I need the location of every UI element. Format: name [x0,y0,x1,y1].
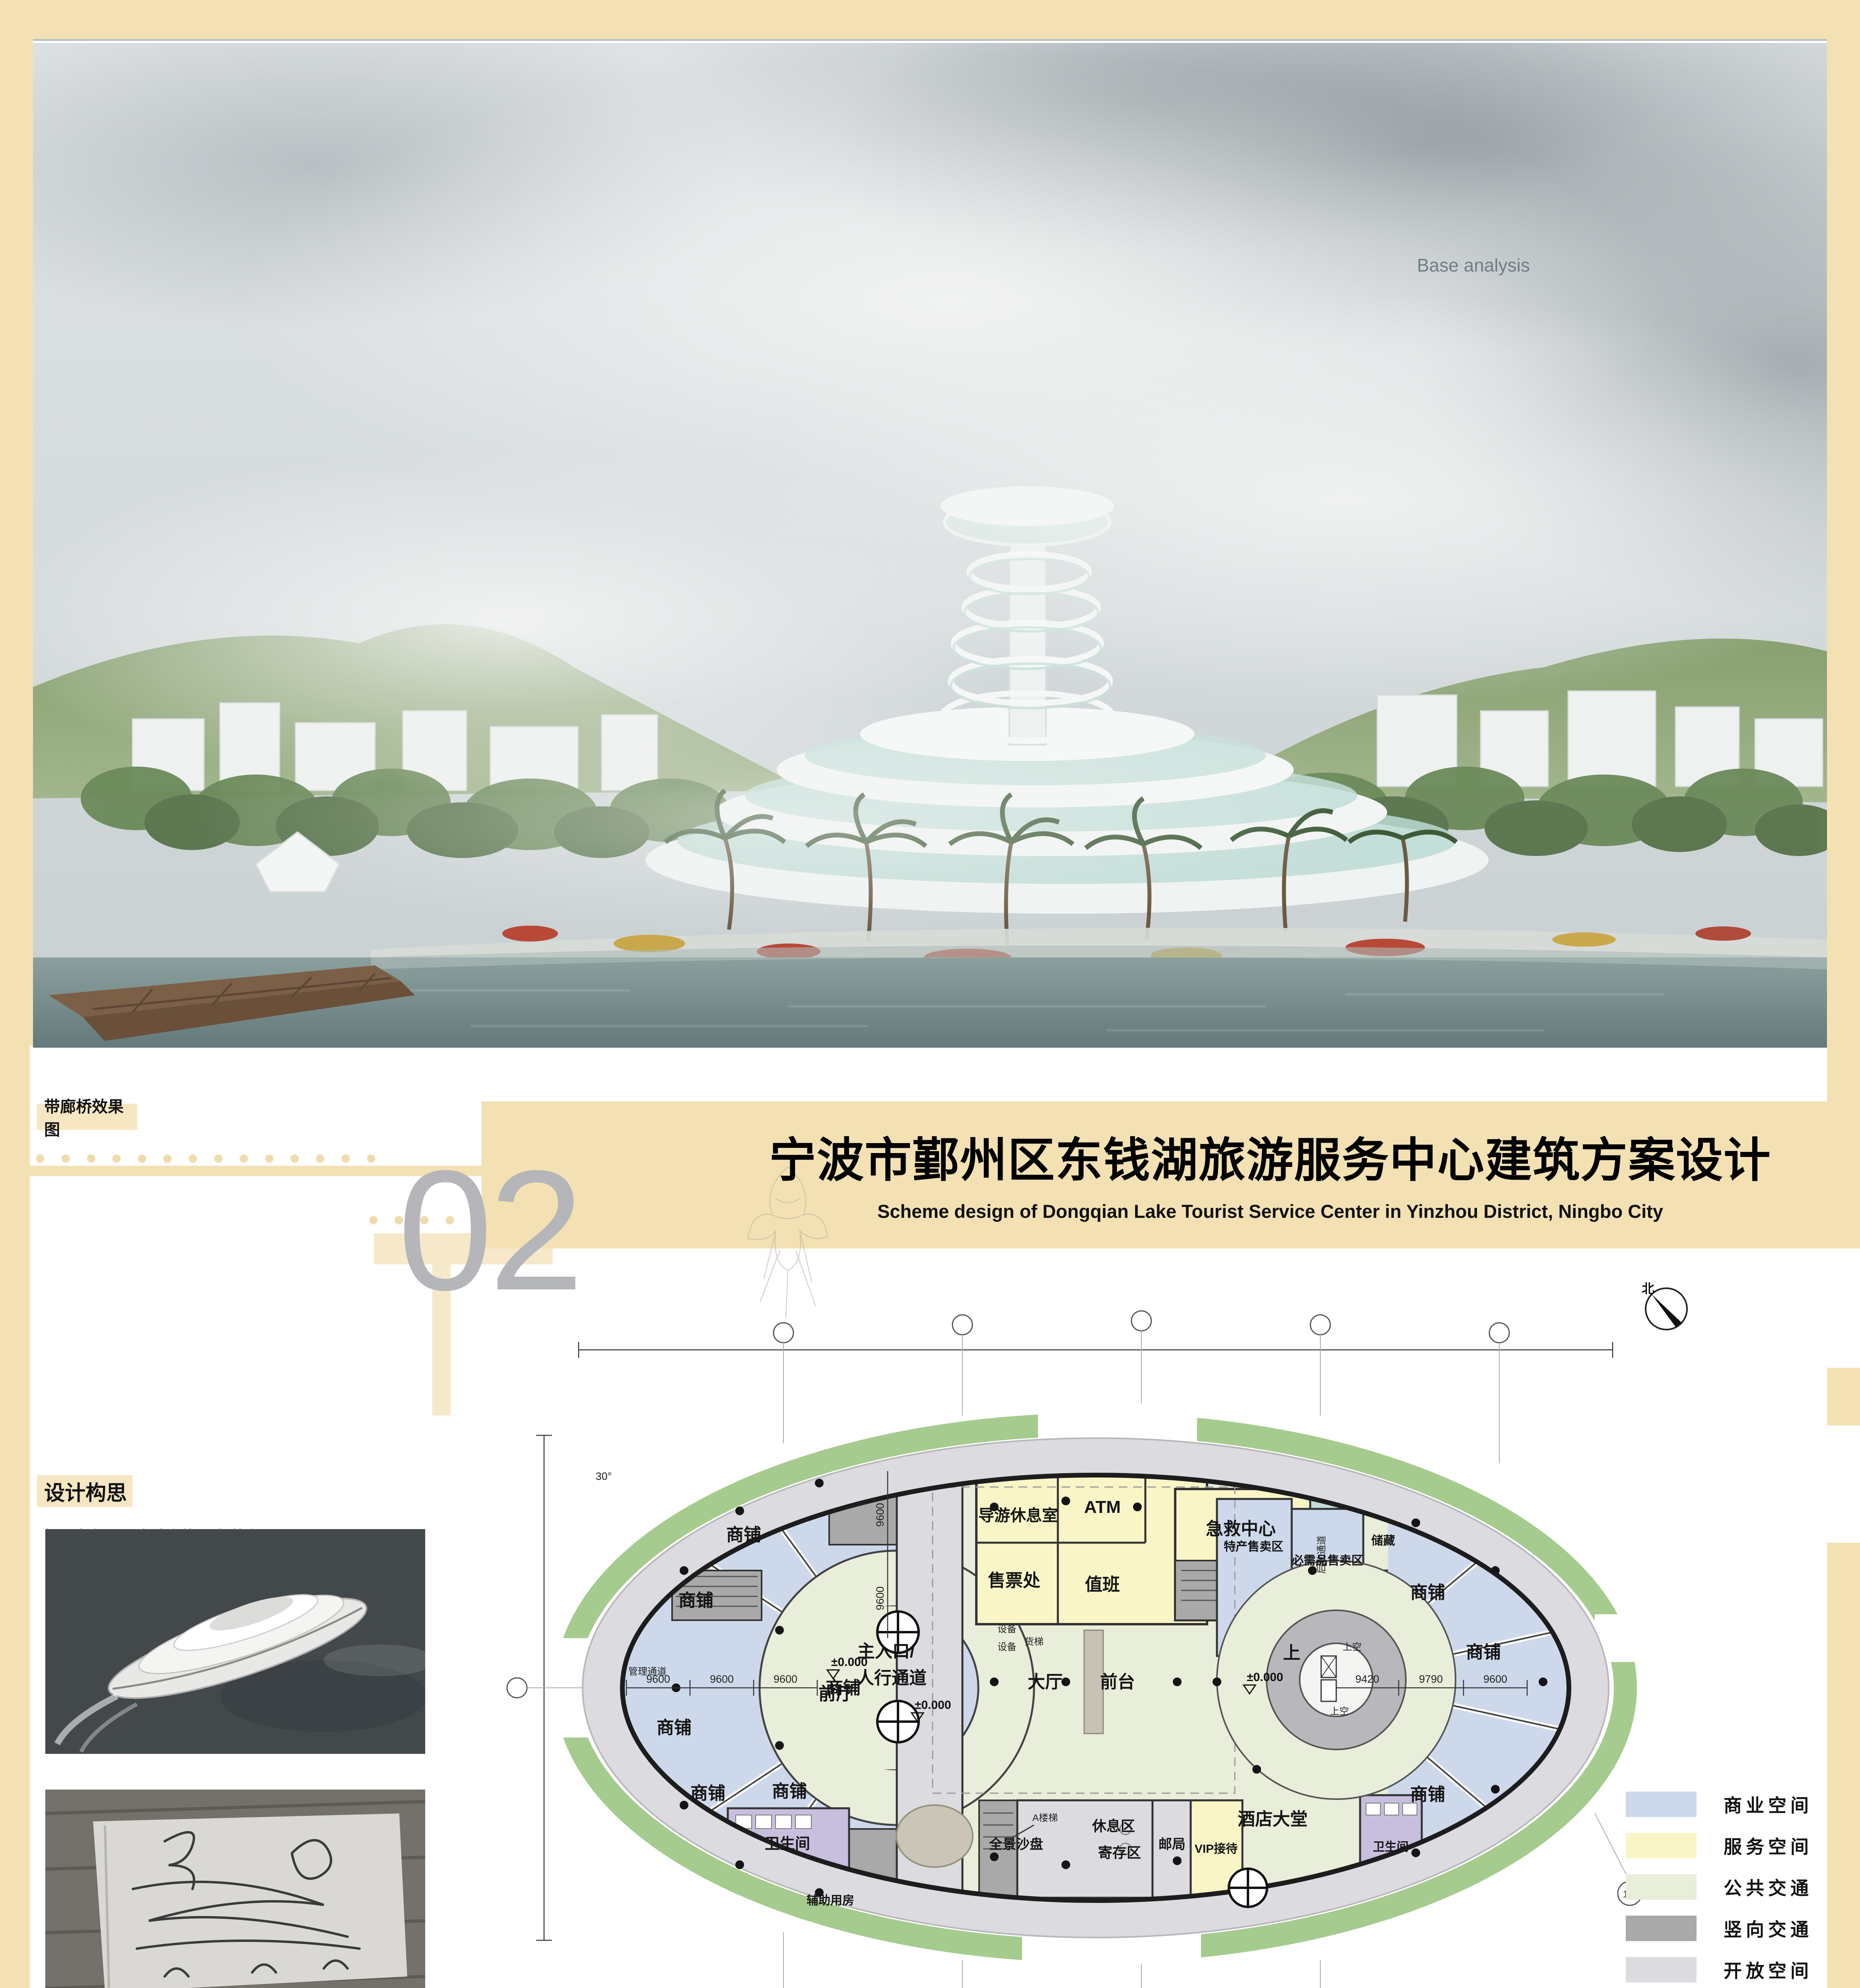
svg-text:酒店大堂: 酒店大堂 [1238,1809,1308,1829]
svg-text:商铺: 商铺 [1410,1785,1445,1804]
hero-overlay-text: Base analysis [1417,255,1530,276]
svg-text:人行通道: 人行通道 [857,1668,927,1688]
dotted-row-left [36,1154,383,1163]
svg-text:邮局: 邮局 [1158,1837,1186,1852]
svg-text:设备: 设备 [997,1642,1016,1652]
panorama-sand-table [896,1805,973,1867]
right-notch-2 [1827,1425,1860,1543]
svg-text:上空: 上空 [1343,1642,1362,1652]
figure-notebook-sketch-1 [45,1789,426,1988]
svg-text:商铺: 商铺 [690,1784,725,1803]
svg-text:9600: 9600 [874,1503,886,1527]
presentation-board: { "header": { "panel_number": "02", "tit… [0,0,1860,1988]
svg-text:导游休息室: 导游休息室 [978,1507,1058,1524]
svg-text:商铺: 商铺 [1410,1583,1445,1602]
svg-text:前厅: 前厅 [818,1684,853,1704]
svg-text:9600: 9600 [646,1673,670,1685]
legend-label: 开放空间 [1724,1957,1813,1983]
legend-label: 商业空间 [1724,1791,1813,1817]
svg-text:储藏: 储藏 [1371,1534,1395,1547]
svg-text:A楼梯: A楼梯 [1032,1813,1058,1823]
legend-label: 服务空间 [1724,1833,1813,1859]
svg-text:上空: 上空 [1330,1706,1349,1717]
title-band: 宁波市鄞州区东钱湖旅游服务中心建筑方案设计 Scheme design of D… [482,1101,1860,1248]
svg-text:9600: 9600 [710,1673,734,1685]
figure-yacht-photo [45,1529,426,1754]
svg-text:辅助用房: 辅助用房 [807,1894,854,1907]
svg-text:必需品售卖区: 必需品售卖区 [1292,1554,1363,1567]
svg-text:大厅: 大厅 [1028,1672,1063,1692]
svg-text:卫生间: 卫生间 [1373,1840,1409,1854]
hero-render-frame: Base analysis [33,39,1827,1048]
hero-render-image: Base analysis [33,43,1827,1048]
svg-text:货梯: 货梯 [1024,1637,1044,1647]
svg-text:北: 北 [1642,1281,1654,1296]
svg-text:±0.000: ±0.000 [915,1699,951,1712]
legend-label: 竖向交通 [1724,1915,1813,1941]
legend-label: 公共交通 [1724,1874,1813,1900]
svg-text:ATM: ATM [1084,1497,1121,1517]
svg-text:特产售卖区: 特产售卖区 [1224,1540,1283,1553]
legend-swatch [1626,1792,1697,1817]
hero-caption-label: 带廊桥效果图 [44,1094,137,1140]
zone-service-top [976,1471,1207,1624]
legend-row: 商业空间 [1626,1791,1813,1817]
svg-text:设备: 设备 [997,1624,1016,1635]
poster-title-cn: 宁波市鄞州区东钱湖旅游服务中心建筑方案设计 [696,1122,1844,1190]
svg-text:商铺: 商铺 [772,1782,807,1801]
concept-heading-chip: 设计构思 [37,1475,132,1507]
svg-text:急救中心: 急救中心 [1206,1519,1276,1539]
svg-text:休息区: 休息区 [1092,1818,1135,1834]
poster-title-en: Scheme design of Dongqian Lake Tourist S… [696,1200,1844,1222]
legend-row: 服务空间 [1626,1833,1813,1859]
svg-text:9600: 9600 [774,1673,797,1685]
svg-text:值班: 值班 [1085,1575,1120,1594]
svg-text:9600: 9600 [1483,1673,1507,1685]
svg-text:商铺: 商铺 [657,1718,692,1738]
concept-heading: 设计构思 [44,1476,127,1506]
legend-row: 竖向交通 [1626,1915,1813,1941]
svg-text:9600: 9600 [874,1586,886,1610]
floor-plan-drawing: 商铺 商铺 商铺 商铺 商铺 商铺 商铺 商铺 商铺 管理通道 前厅 导游休息室… [465,1252,1821,1988]
legend-swatch [1626,1957,1697,1982]
svg-text:VIP接待: VIP接待 [1195,1842,1238,1856]
svg-text:售票处: 售票处 [988,1571,1040,1590]
right-notch-1 [1827,1248,1860,1368]
svg-text:9790: 9790 [1419,1673,1443,1685]
legend-swatch [1626,1833,1697,1858]
svg-text:9420: 9420 [1355,1673,1379,1685]
svg-text:30°: 30° [596,1470,612,1482]
svg-text:寄存区: 寄存区 [1098,1844,1141,1861]
svg-text:卫生间: 卫生间 [765,1836,810,1852]
north-arrow-icon: 北 [1642,1281,1687,1330]
legend-swatch [1626,1916,1697,1941]
legend-row: 开放空间 [1626,1957,1813,1983]
svg-text:上: 上 [1283,1643,1300,1663]
svg-text:±0.000: ±0.000 [831,1656,868,1669]
hero-caption-chip: 带廊桥效果图 [37,1104,137,1130]
svg-text:前台: 前台 [1100,1672,1135,1692]
legend-row: 公共交通 [1626,1874,1813,1900]
svg-text:商铺: 商铺 [1466,1642,1501,1662]
svg-text:±0.000: ±0.000 [1247,1671,1283,1684]
legend-swatch [1626,1874,1697,1900]
svg-text:商铺: 商铺 [726,1525,761,1545]
svg-text:全景沙盘: 全景沙盘 [989,1837,1043,1852]
svg-text:商铺: 商铺 [678,1591,713,1610]
